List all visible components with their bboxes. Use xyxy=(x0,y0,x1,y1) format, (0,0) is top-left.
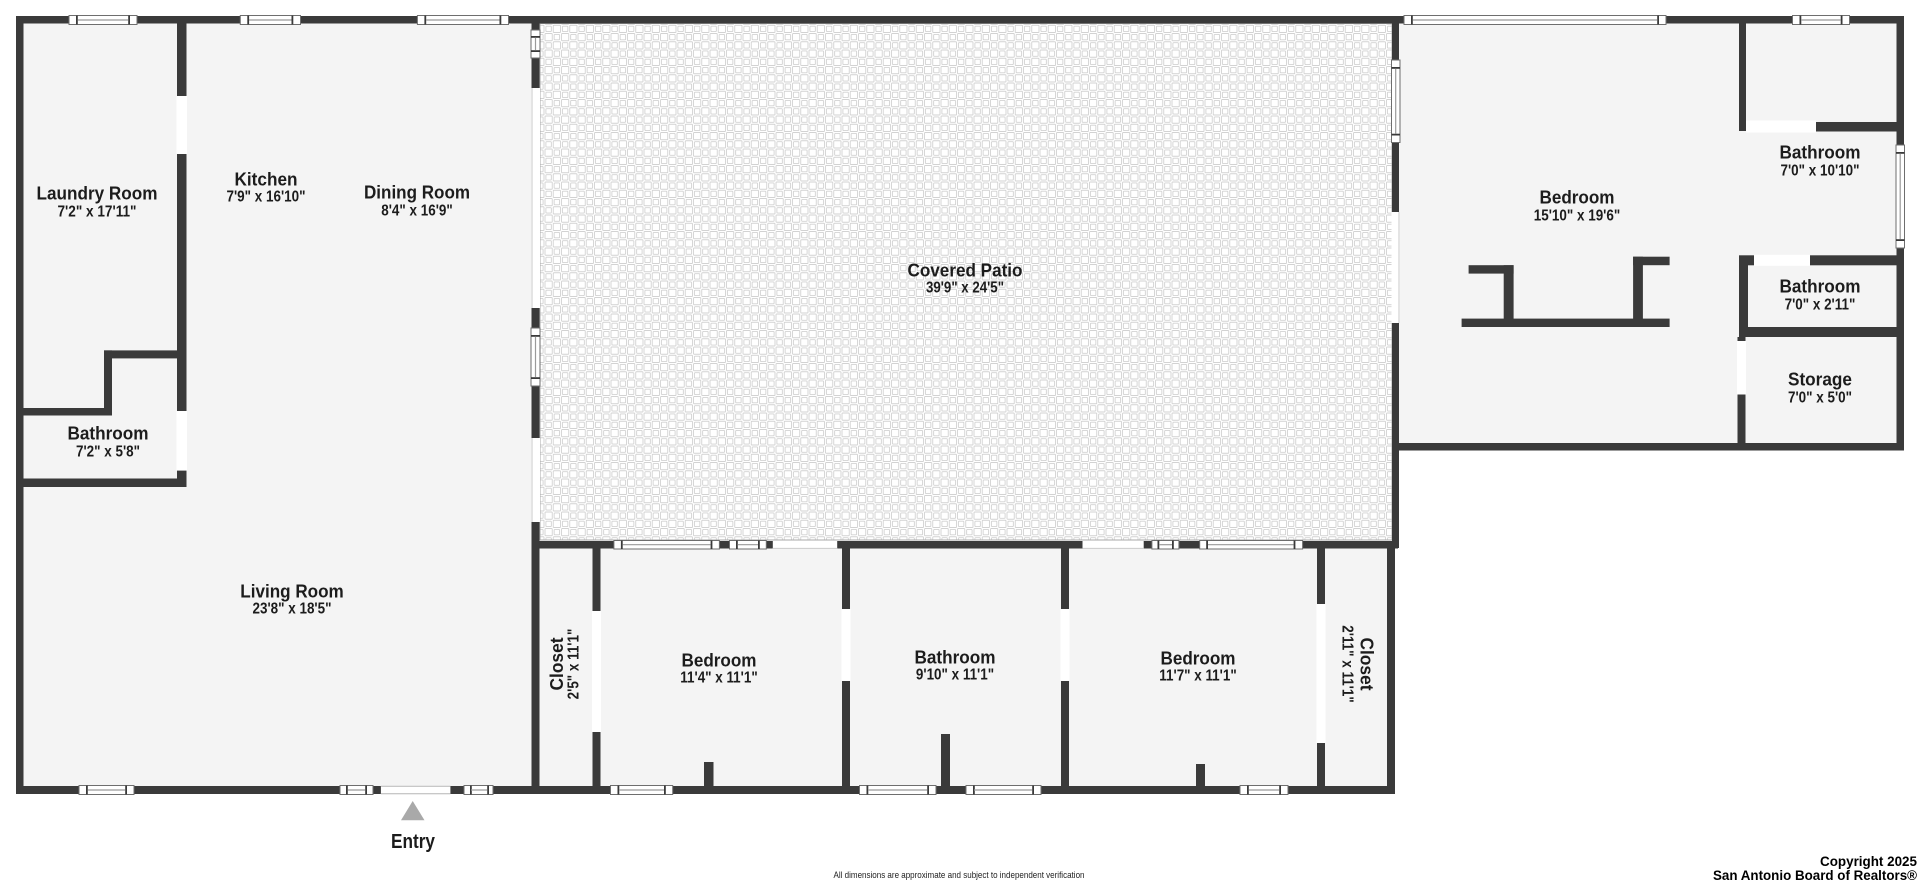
svg-text:Living Room: Living Room xyxy=(240,581,344,602)
svg-text:All dimensions are approximate: All dimensions are approximate and subje… xyxy=(834,870,1085,881)
svg-text:Dining Room: Dining Room xyxy=(364,182,470,203)
svg-text:Bathroom: Bathroom xyxy=(68,423,149,444)
svg-text:2'11" x 11'1": 2'11" x 11'1" xyxy=(1339,625,1356,702)
svg-text:23'8" x 18'5": 23'8" x 18'5" xyxy=(253,601,332,618)
svg-text:Bedroom: Bedroom xyxy=(682,650,757,671)
svg-text:11'4" x 11'1": 11'4" x 11'1" xyxy=(680,670,757,687)
svg-text:Laundry Room: Laundry Room xyxy=(37,183,158,204)
svg-text:Bedroom: Bedroom xyxy=(1161,648,1236,669)
svg-text:Bathroom: Bathroom xyxy=(1780,276,1861,297)
svg-text:7'2" x 5'8": 7'2" x 5'8" xyxy=(76,444,140,461)
svg-text:39'9" x 24'5": 39'9" x 24'5" xyxy=(926,280,1004,297)
svg-text:2'5" x 11'1": 2'5" x 11'1" xyxy=(566,629,583,700)
svg-text:11'7" x 11'1": 11'7" x 11'1" xyxy=(1159,668,1236,685)
svg-text:15'10" x 19'6": 15'10" x 19'6" xyxy=(1534,208,1621,225)
svg-text:San Antonio Board of Realtors®: San Antonio Board of Realtors® xyxy=(1713,868,1917,883)
svg-text:Kitchen: Kitchen xyxy=(235,169,298,190)
svg-text:7'2" x 17'11": 7'2" x 17'11" xyxy=(58,204,137,221)
svg-text:Entry: Entry xyxy=(391,831,436,853)
svg-text:Closet: Closet xyxy=(546,638,567,691)
svg-text:Bathroom: Bathroom xyxy=(915,647,996,668)
svg-text:Copyright 2025: Copyright 2025 xyxy=(1820,854,1917,869)
svg-text:8'4" x 16'9": 8'4" x 16'9" xyxy=(381,203,453,220)
svg-text:Covered Patio: Covered Patio xyxy=(908,260,1023,281)
svg-text:Closet: Closet xyxy=(1357,638,1378,691)
svg-text:7'0" x 2'11": 7'0" x 2'11" xyxy=(1785,297,1856,314)
svg-text:7'9" x 16'10": 7'9" x 16'10" xyxy=(227,189,306,206)
svg-text:9'10" x 11'1": 9'10" x 11'1" xyxy=(916,667,994,684)
svg-text:Bathroom: Bathroom xyxy=(1780,142,1861,163)
svg-text:7'0" x 5'0": 7'0" x 5'0" xyxy=(1788,390,1852,407)
svg-text:7'0" x 10'10": 7'0" x 10'10" xyxy=(1781,163,1860,180)
svg-text:Storage: Storage xyxy=(1788,369,1852,390)
svg-text:Bedroom: Bedroom xyxy=(1540,187,1615,208)
